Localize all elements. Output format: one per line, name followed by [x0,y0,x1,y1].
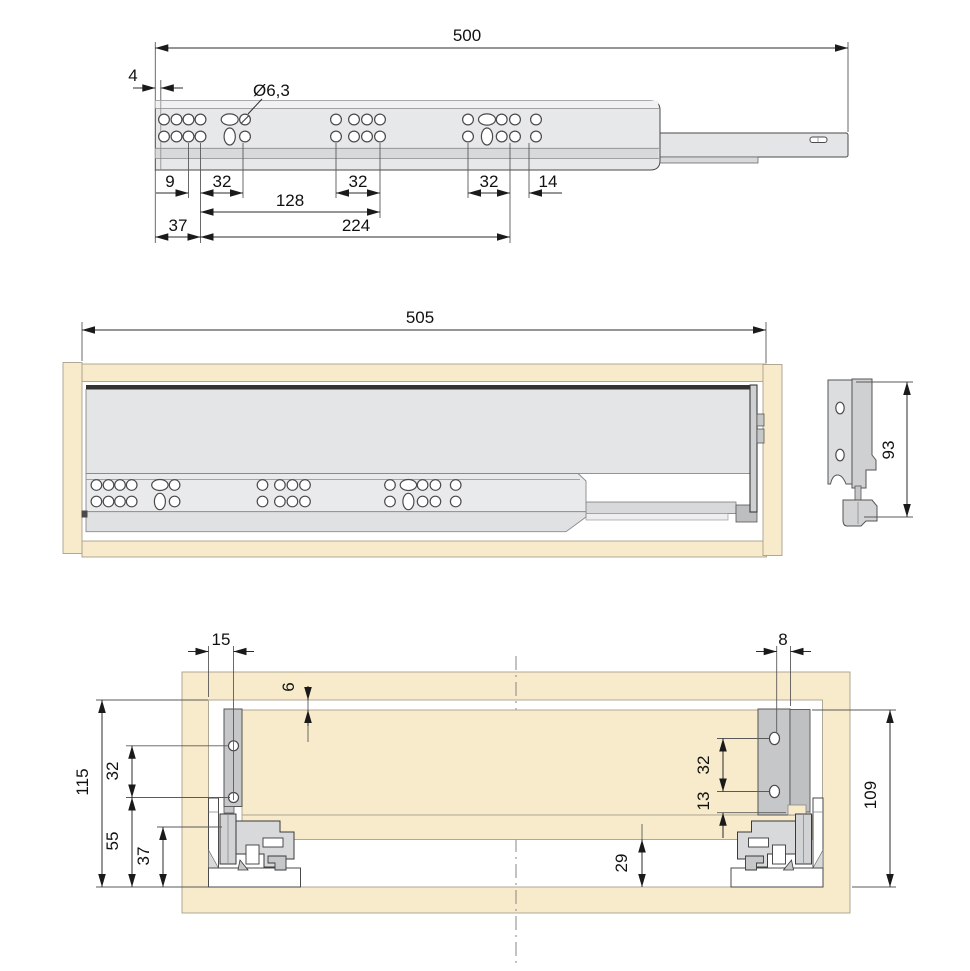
drawer-side-assembly [82,385,765,532]
drawer-back-connector [750,385,764,512]
dim-label-6: 6 [279,682,298,691]
dim-label-505: 505 [406,308,434,327]
dim-label-93: 93 [879,441,898,460]
dim-label-13: 13 [694,792,713,811]
dim-label-55: 55 [103,832,122,851]
inner-rail-member [658,133,848,163]
drawer-front-elevation: 505 93 [63,308,913,557]
dim-label-29: 29 [612,854,631,873]
dim-label-32-mid: 32 [349,172,368,191]
right-rear-bracket [758,709,810,815]
dim-label-224: 224 [342,216,370,235]
dim-label-109: 109 [861,781,880,809]
drawer-back-panel [242,710,810,815]
dim-label-37-section: 37 [134,847,153,866]
slide-foot-section [843,500,877,526]
drawer-bottom-panel [242,815,812,840]
dim-label-37-top: 37 [169,216,188,235]
dim-label-32-left: 32 [103,762,122,781]
dim-label-14: 14 [539,172,558,191]
drawer-lower-profile [86,512,586,532]
dimension-505: 505 [82,308,766,363]
dim-label-32-rear: 32 [480,172,499,191]
dim-label-32-front: 32 [213,172,232,191]
drawer-top-edge [86,385,757,390]
dim-label-115: 115 [73,768,92,795]
rear-bracket-side-view: 93 [828,379,913,526]
dim-label-8: 8 [778,630,787,649]
cabinet-cross-section: 15 6 115 32 55 37 8 32 13 109 29 [73,630,896,968]
dim-label-128: 128 [276,191,304,210]
dim-label-32-right: 32 [694,756,713,775]
slide-rail-top-view: 500 4 Ø6,3 9 32 32 32 14 128 37 224 [128,26,848,243]
dim-label-4: 4 [128,66,137,85]
drawing-canvas: 500 4 Ø6,3 9 32 32 32 14 128 37 224 [0,0,970,971]
dim-label-hole-dia: Ø6,3 [253,81,290,100]
dim-label-500: 500 [453,26,481,45]
dim-label-15: 15 [212,630,231,649]
dim-label-9: 9 [165,172,174,191]
drawer-side-panel [86,390,750,474]
technical-drawing-page: 500 4 Ø6,3 9 32 32 32 14 128 37 224 [0,0,970,971]
